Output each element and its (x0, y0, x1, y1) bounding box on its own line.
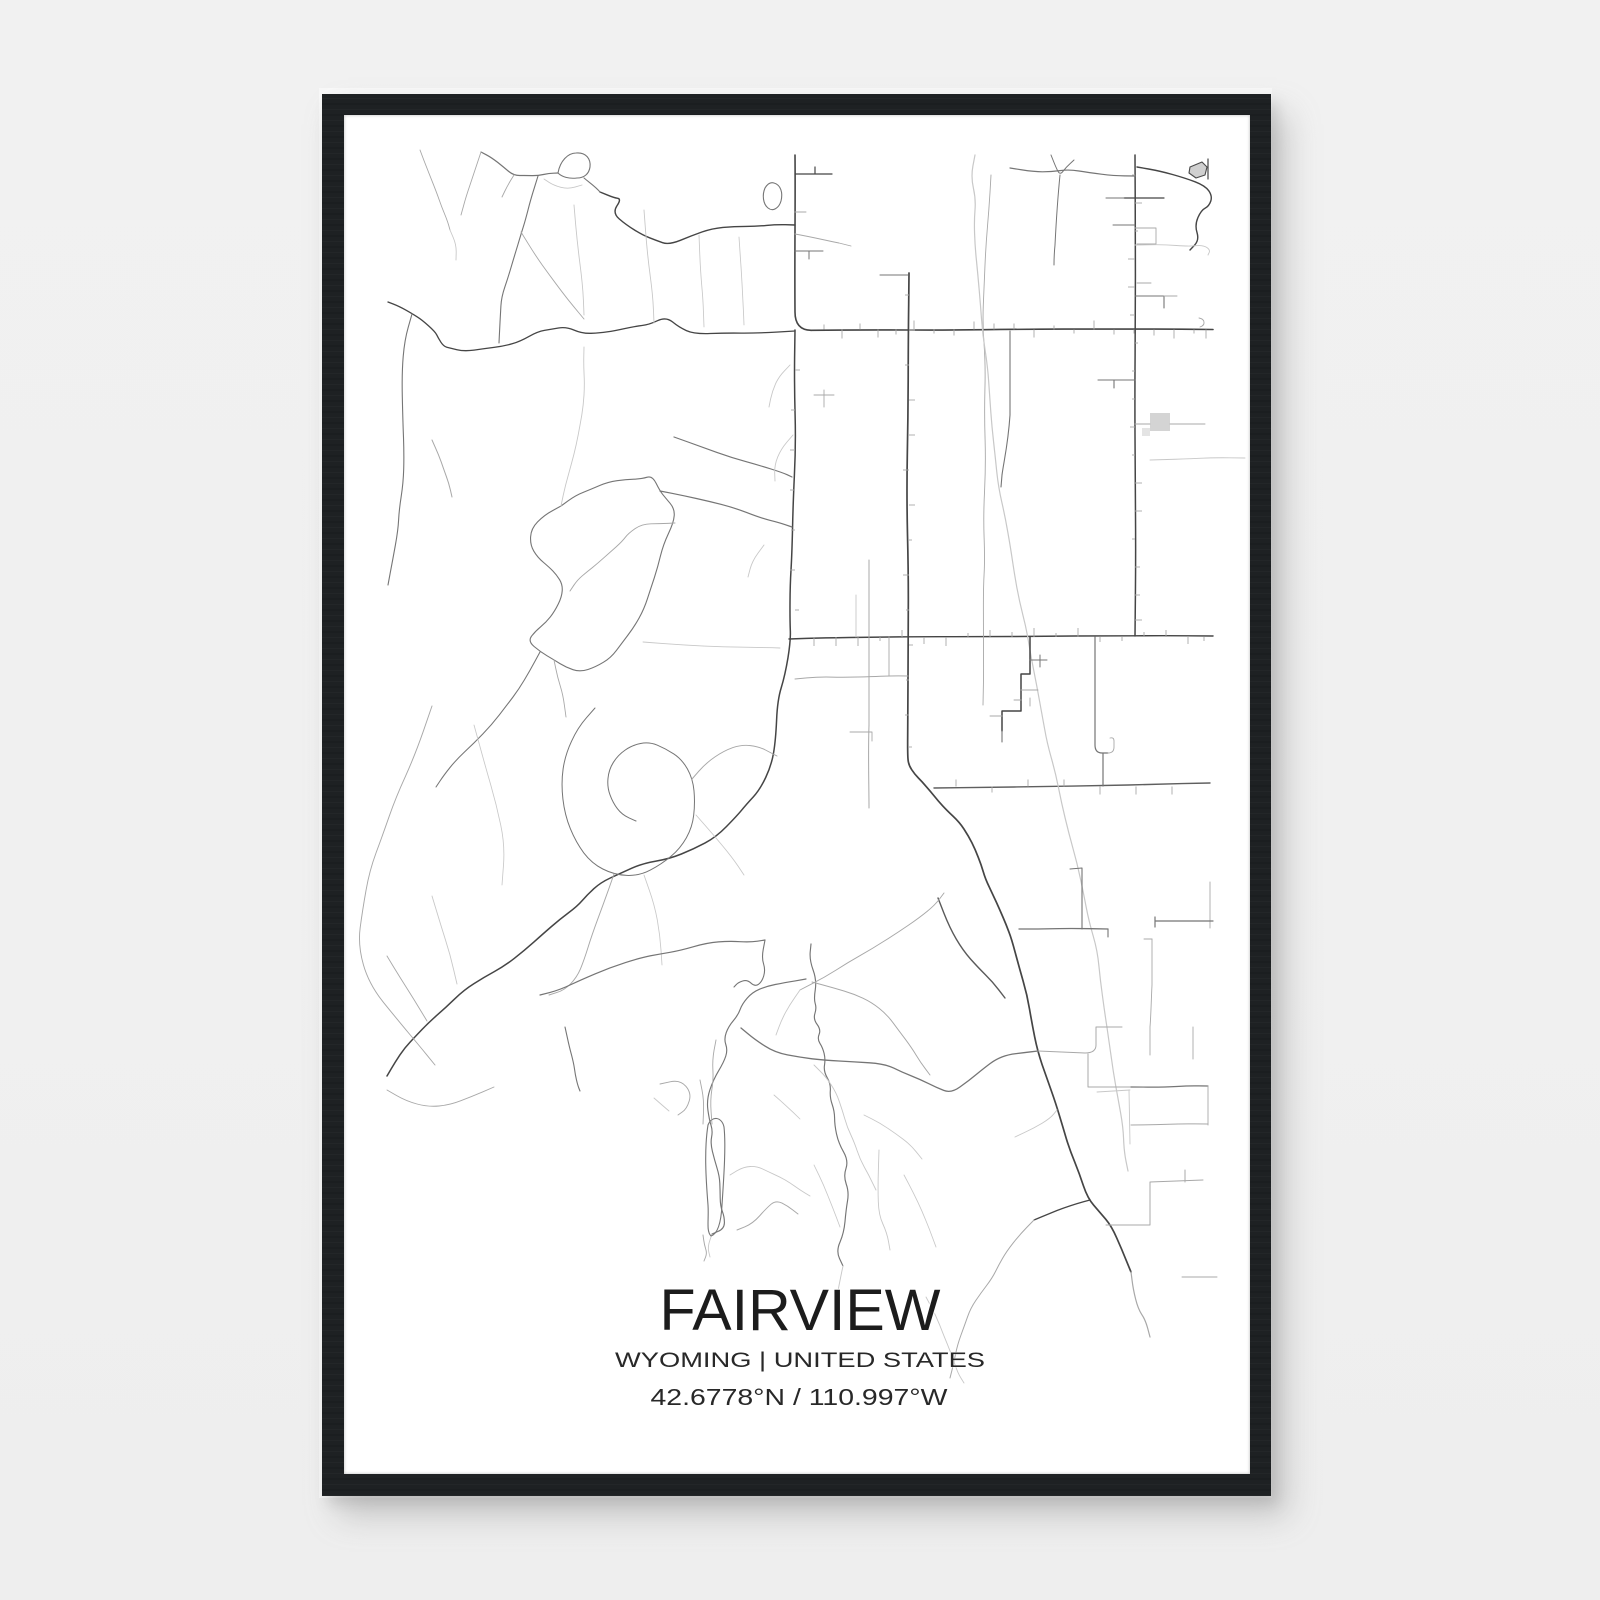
svg-text:FAIRVIEW: FAIRVIEW (660, 1278, 941, 1343)
svg-text:WYOMING | UNITED STATES: WYOMING | UNITED STATES (615, 1349, 985, 1372)
svg-text:42.6778°N / 110.997°W: 42.6778°N / 110.997°W (651, 1384, 948, 1410)
